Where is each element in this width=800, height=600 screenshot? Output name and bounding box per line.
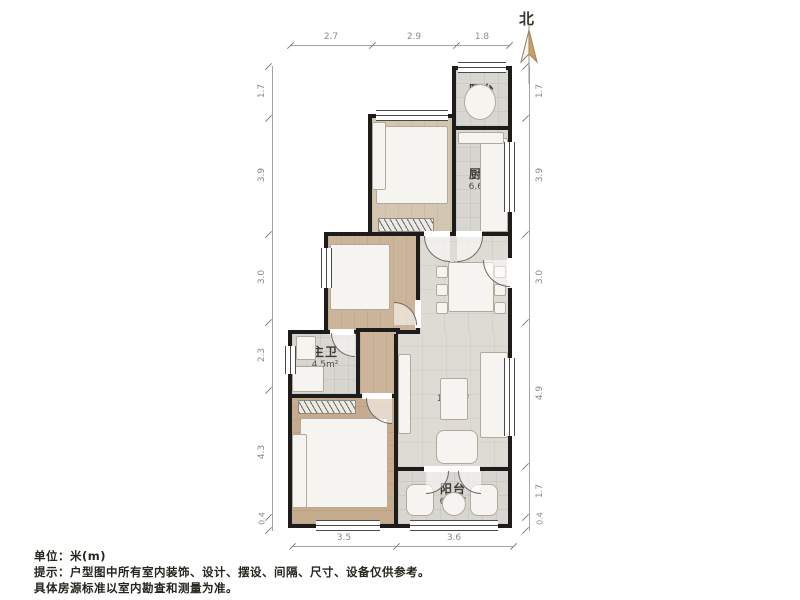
chair-icon bbox=[436, 266, 448, 278]
dim-label: 3.0 bbox=[535, 262, 545, 292]
dim-tick bbox=[522, 514, 529, 521]
kitchen-counter-icon bbox=[458, 132, 504, 144]
dim-label: 0.4 bbox=[258, 504, 267, 534]
dim-label: 2.3 bbox=[257, 340, 267, 370]
dim-label: 0.4 bbox=[536, 504, 545, 534]
dim-tick bbox=[265, 319, 272, 326]
dim-label: 3.6 bbox=[439, 533, 469, 543]
dim-tick bbox=[265, 63, 272, 70]
legend-notes: 单位：米(m) 提示：户型图中所有室内装饰、设计、摆设、间隔、尺寸、设备仅供参考… bbox=[34, 549, 430, 597]
toilet-icon bbox=[296, 336, 316, 360]
dim-label: 1.7 bbox=[535, 476, 545, 506]
dimension-line-top bbox=[290, 45, 509, 46]
chair-icon bbox=[436, 284, 448, 296]
closet-icon bbox=[372, 122, 386, 190]
dim-label: 4.3 bbox=[257, 437, 267, 467]
window bbox=[504, 142, 515, 212]
window bbox=[376, 110, 448, 121]
chair-icon bbox=[436, 302, 448, 314]
dim-label: 4.9 bbox=[535, 378, 545, 408]
bed-icon bbox=[376, 126, 448, 204]
radiator-icon bbox=[298, 400, 356, 414]
wardrobe-icon bbox=[292, 434, 307, 508]
bed-icon bbox=[300, 418, 388, 508]
dim-label: 2.7 bbox=[316, 32, 346, 42]
dim-tick bbox=[522, 115, 529, 122]
dim-label: 1.7 bbox=[257, 76, 267, 106]
dim-tick bbox=[522, 527, 529, 534]
dim-label: 3.9 bbox=[257, 160, 267, 190]
dim-tick bbox=[522, 463, 529, 470]
dimension-line-right bbox=[529, 66, 530, 531]
dim-label: 3.5 bbox=[329, 533, 359, 543]
north-arrow-icon bbox=[514, 26, 544, 84]
dim-tick bbox=[265, 115, 272, 122]
chair-icon bbox=[494, 302, 506, 314]
window bbox=[410, 520, 498, 531]
tip-note-line1: 提示：户型图中所有室内装饰、设计、摆设、间隔、尺寸、设备仅供参考。 bbox=[34, 565, 430, 581]
dim-tick bbox=[522, 231, 529, 238]
tip-note-line2: 具体房源标准以室内勘查和测量为准。 bbox=[34, 581, 430, 597]
floor-plan: 北 阳台 2.6m² 次卧2 10.5m² 厨房 6.6m² 次卧 7.7m² … bbox=[0, 0, 800, 600]
window bbox=[285, 346, 296, 374]
dim-label: 3.9 bbox=[535, 160, 545, 190]
dim-label: 1.8 bbox=[467, 32, 497, 42]
plant-icon bbox=[464, 84, 496, 120]
dim-tick bbox=[522, 319, 529, 326]
dim-label: 3.0 bbox=[257, 262, 267, 292]
dim-tick bbox=[265, 387, 272, 394]
tv-cabinet-icon bbox=[398, 354, 411, 434]
coffee-table-icon bbox=[440, 378, 468, 420]
dimension-line-bottom bbox=[292, 546, 513, 547]
dim-tick bbox=[506, 42, 513, 49]
dim-label: 2.9 bbox=[399, 32, 429, 42]
window bbox=[504, 358, 515, 436]
sink-icon bbox=[292, 366, 324, 392]
unit-note: 单位：米(m) bbox=[34, 549, 430, 565]
dim-tick bbox=[510, 543, 517, 550]
round-table-icon bbox=[442, 492, 466, 516]
dim-tick bbox=[265, 231, 272, 238]
bed-icon bbox=[330, 244, 390, 310]
window bbox=[458, 62, 506, 73]
window bbox=[321, 248, 332, 288]
radiator-icon bbox=[378, 218, 434, 232]
armchair-icon bbox=[436, 430, 478, 464]
dimension-line-left bbox=[272, 66, 273, 531]
window bbox=[316, 520, 380, 531]
